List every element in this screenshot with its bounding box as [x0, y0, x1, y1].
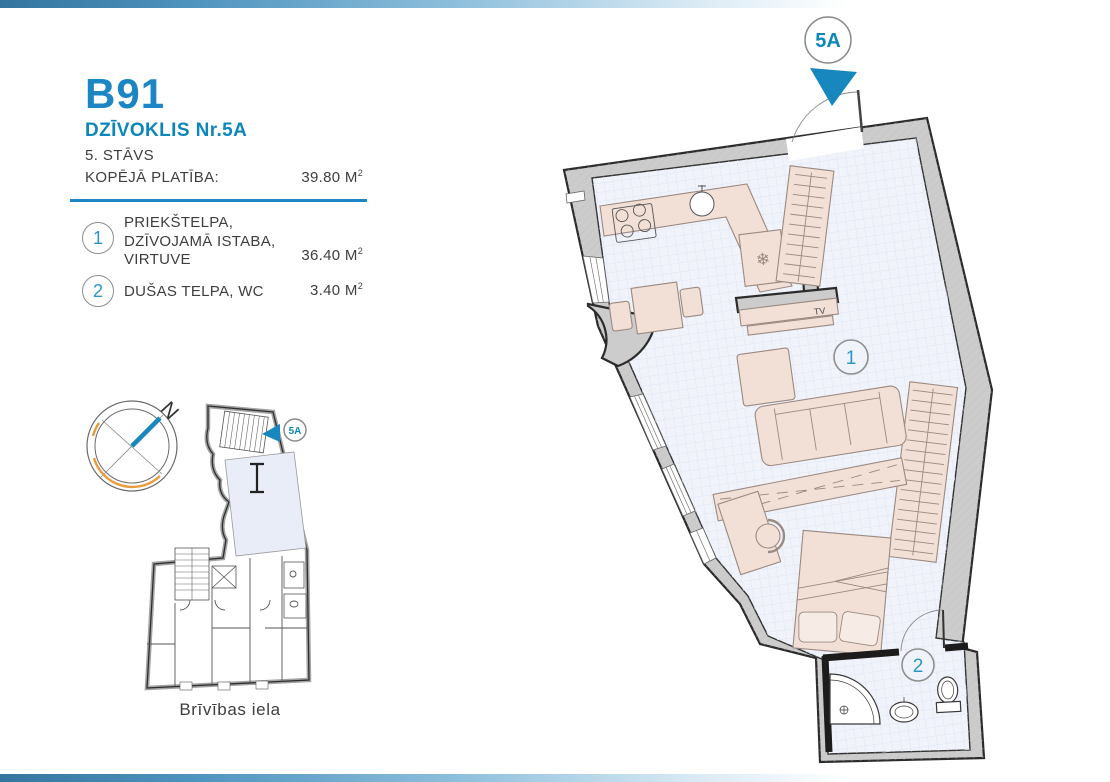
total-area-label: KOPĒJĀ PLATĪBA: — [85, 169, 219, 186]
tv-label: TV — [813, 306, 826, 317]
minimap-stairs-top — [220, 411, 269, 453]
legend-room2-area: 3.40 M2 — [250, 281, 363, 299]
room1-number: 1 — [846, 348, 857, 369]
room1-area-exp: 2 — [358, 246, 363, 256]
room2-area-number: 3.40 — [310, 282, 340, 299]
legend-room2-circle: 2 — [82, 275, 114, 307]
total-area-value: 39.80 M2 — [250, 168, 363, 186]
building-code: B91 — [85, 70, 165, 118]
area-unit: M — [345, 169, 358, 186]
street-name: Brīvības iela — [120, 700, 340, 720]
separator-line — [70, 199, 367, 202]
floor-plan-page: B91 DZĪVOKLIS Nr.5A 5. STĀVS KOPĒJĀ PLAT… — [0, 0, 1110, 782]
top-gradient-bar — [0, 0, 892, 8]
room1-area-number: 36.40 — [301, 247, 340, 264]
room1-area-unit: M — [345, 247, 358, 264]
minimap-elevator — [212, 566, 236, 588]
room2-number: 2 — [913, 656, 924, 677]
main-floor-plan: 5A ❄ TV — [552, 8, 1108, 778]
building-minimap: 5A — [130, 398, 330, 698]
legend-room1-area: 36.40 M2 — [250, 246, 363, 264]
legend-room2-label: DUŠAS TELPA, WC — [124, 283, 264, 302]
floor-label: 5. STĀVS — [85, 147, 154, 164]
entrance-badge: 5A — [815, 30, 841, 52]
highlighted-apartment — [225, 452, 306, 556]
legend-room1-line1: PRIEKŠTELPA, — [124, 214, 276, 233]
minimap-unit-badge: 5A — [289, 426, 302, 437]
entrance-door-leaf — [858, 90, 862, 132]
area-exponent: 2 — [358, 168, 363, 178]
total-area-number: 39.80 — [301, 169, 340, 186]
legend-room2-line1: DUŠAS TELPA, WC — [124, 283, 264, 302]
bathroom-door-leaf — [943, 610, 944, 648]
apartment-title: DZĪVOKLIS Nr.5A — [85, 120, 247, 142]
ottoman — [737, 348, 796, 407]
bed — [793, 530, 891, 655]
pillow — [839, 611, 881, 647]
room2-area-unit: M — [345, 282, 358, 299]
minimap-stairwell — [175, 548, 209, 600]
bathroom-wall — [945, 646, 968, 648]
svg-text:❄: ❄ — [755, 249, 771, 270]
legend-room1-circle: 1 — [82, 222, 114, 254]
entrance-arrow — [810, 68, 857, 106]
pillow — [799, 612, 837, 642]
room2-area-exp: 2 — [358, 281, 363, 291]
bathroom-wall — [825, 656, 829, 752]
